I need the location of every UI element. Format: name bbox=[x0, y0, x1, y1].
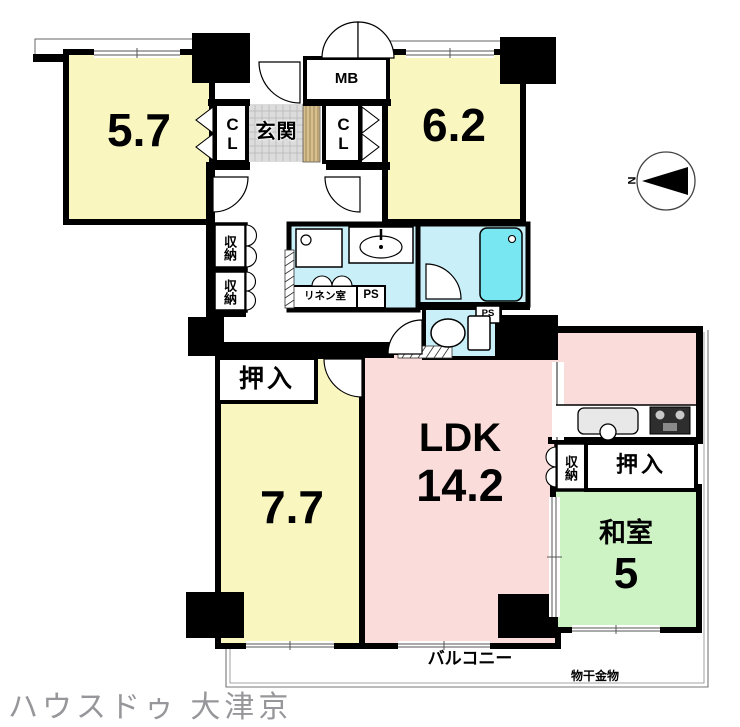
entrance-label: 玄関 bbox=[248, 122, 305, 142]
entrance-door-arc bbox=[259, 62, 300, 103]
oshiire-west-label: 押入 bbox=[218, 367, 316, 392]
window bbox=[572, 625, 660, 634]
room-western2-label: 6.2 bbox=[385, 102, 523, 148]
room2-door-arc bbox=[325, 177, 360, 212]
pillar bbox=[495, 315, 558, 360]
kitchen-right-wall bbox=[696, 326, 703, 444]
bathtub-icon bbox=[480, 228, 522, 301]
closet-left-label: CL bbox=[224, 109, 241, 159]
window bbox=[94, 48, 180, 58]
pillar bbox=[186, 592, 244, 638]
washing-machine-icon bbox=[296, 229, 342, 267]
room-ldk-name: LDK bbox=[362, 418, 558, 458]
toilet-door-arc bbox=[388, 320, 422, 354]
sink-faucet bbox=[600, 424, 616, 440]
pillar bbox=[192, 33, 250, 83]
watermark: ハウスドゥ 大津京 bbox=[8, 682, 292, 726]
cl-right-fold bbox=[362, 134, 379, 160]
storage-kitchen-label: 収納 bbox=[564, 450, 577, 486]
pipe-space1-label: PS bbox=[357, 290, 385, 302]
compass-north-label: N bbox=[628, 174, 639, 188]
window bbox=[406, 48, 494, 58]
storage1-label: 収納 bbox=[223, 229, 236, 267]
kitchen-top-wall bbox=[548, 326, 703, 333]
room-ldk-size: 14.2 bbox=[362, 463, 558, 508]
pipe-space2-label: PS bbox=[476, 309, 500, 319]
pillar bbox=[500, 37, 556, 84]
window bbox=[246, 641, 334, 650]
meter-box-label: MB bbox=[305, 71, 388, 86]
north-compass bbox=[637, 152, 695, 210]
room-western1-label: 5.7 bbox=[66, 107, 212, 153]
floor-plan-canvas: 5.7 6.2 7.7 LDK 14.2 和室 5 玄関 MB CL CL 収納… bbox=[0, 0, 740, 727]
room-western3-label: 7.7 bbox=[218, 484, 366, 530]
laundry-hardware-label: 物干金物 bbox=[560, 670, 630, 682]
oshiire-east-label: 押入 bbox=[586, 454, 696, 476]
mb-door-arc bbox=[358, 22, 394, 58]
cl-right-fold bbox=[362, 107, 379, 133]
room1-door-arc bbox=[213, 177, 248, 212]
closet-right-label: CL bbox=[335, 109, 352, 159]
pillar bbox=[188, 317, 224, 356]
vanity-sink-icon bbox=[349, 227, 413, 263]
room-japanese-size: 5 bbox=[553, 552, 699, 596]
linen-room-label: リネン室 bbox=[293, 291, 357, 302]
balcony-label: バルコニー bbox=[405, 650, 535, 667]
storage2-label: 収納 bbox=[223, 275, 236, 309]
room-japanese-name: 和室 bbox=[553, 520, 699, 547]
mb-door-arc bbox=[322, 22, 358, 58]
